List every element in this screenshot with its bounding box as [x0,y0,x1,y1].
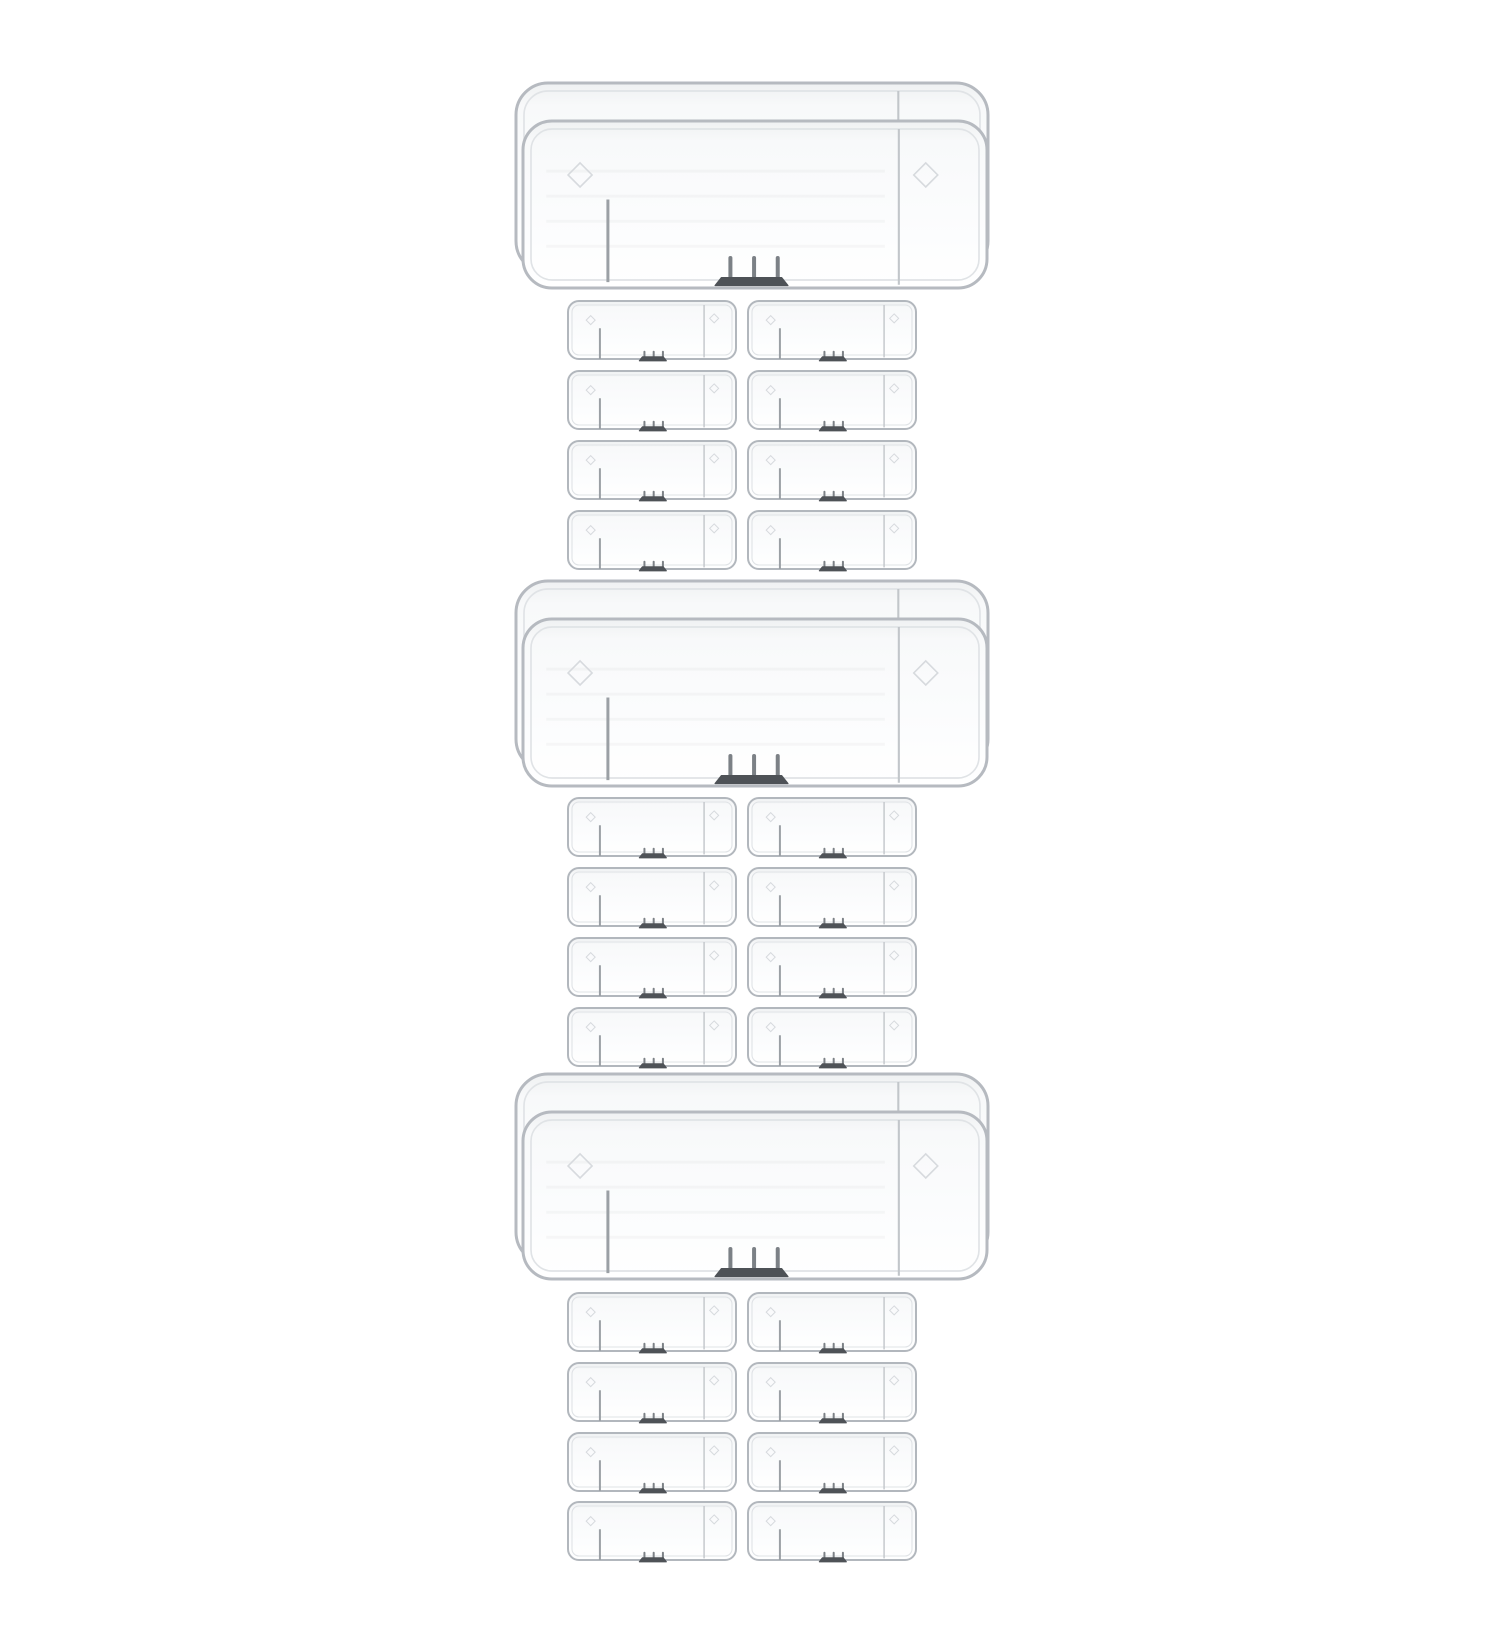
lock-base-bar [819,357,846,361]
tray-small-3-r4-c2-body [748,1502,916,1560]
organizer-set-1 [516,83,988,571]
lock-base-bar [715,776,788,784]
tray-small-1-r4-c1 [568,511,736,571]
tray-small-2-r4-c2 [748,1008,916,1068]
lock-base-bar [819,854,846,858]
tray-small-2-r1-c1-body [568,798,736,856]
tray-small-1-r2-c2 [748,371,916,431]
lock-base-bar [639,994,666,998]
lock-base-bar [639,854,666,858]
tray-small-2-r3-c2-body [748,938,916,996]
tray-small-2-r3-c1-body [568,938,736,996]
lock-base-bar [819,994,846,998]
tray-small-3-r2-c1-body [568,1363,736,1421]
product-photo [0,0,1500,1650]
lock-base-bar [819,1064,846,1068]
tray-small-3-r3-c2-body [748,1433,916,1491]
lock-base-bar [819,1489,846,1493]
lock-base-bar [819,1349,846,1353]
tray-small-1-r4-c2 [748,511,916,571]
tray-small-1-r3-c1-body [568,441,736,499]
lock-base-bar [639,567,666,571]
lock-base-bar [639,1064,666,1068]
lock-base-bar [819,924,846,928]
tray-small-3-r4-c2 [748,1502,916,1562]
tray-small-3-r3-c2 [748,1433,916,1493]
tray-small-2-r2-c2-body [748,868,916,926]
tray-small-1-r4-c1-body [568,511,736,569]
lock-base-bar [639,1419,666,1423]
tray-small-3-r1-c2 [748,1293,916,1353]
tray-large-front-3 [523,1112,987,1279]
tray-small-1-r3-c2 [748,441,916,501]
lock-base-bar [819,1558,846,1562]
tray-small-2-r4-c1 [568,1008,736,1068]
tray-small-1-r1-c2 [748,301,916,361]
tray-small-2-r1-c1 [568,798,736,858]
lock-base-bar [639,1558,666,1562]
tray-large-front-2 [523,619,987,786]
tray-large-front-1 [523,121,987,288]
tray-small-3-r3-c1 [568,1433,736,1493]
lock-base-bar [639,427,666,431]
tray-small-1-r1-c1-body [568,301,736,359]
tray-small-3-r1-c1 [568,1293,736,1353]
tray-small-2-r4-c2-body [748,1008,916,1066]
tray-small-2-r3-c2 [748,938,916,998]
lock-base-bar [639,357,666,361]
lock-base-bar [639,1489,666,1493]
tray-small-3-r2-c2 [748,1363,916,1423]
organizer-set-2 [516,581,988,1068]
tray-small-2-r1-c2-body [748,798,916,856]
lock-base-bar [639,924,666,928]
tray-small-1-r4-c2-body [748,511,916,569]
tray-small-3-r4-c1 [568,1502,736,1562]
tray-small-2-r2-c1 [568,868,736,928]
tray-small-1-r2-c2-body [748,371,916,429]
tray-small-2-r1-c2 [748,798,916,858]
lock-base-bar [639,497,666,501]
lock-base-bar [819,497,846,501]
tray-small-2-r2-c1-body [568,868,736,926]
tray-small-3-r1-c2-body [748,1293,916,1351]
lock-base-bar [715,278,788,286]
tray-small-2-r2-c2 [748,868,916,928]
lock-base-bar [819,427,846,431]
tray-small-3-r2-c1 [568,1363,736,1423]
lock-base-bar [819,567,846,571]
tray-small-1-r2-c1 [568,371,736,431]
organizer-set-3 [516,1074,988,1562]
tray-small-1-r1-c2-body [748,301,916,359]
product-photo-canvas [0,0,1500,1650]
lock-base-bar [715,1269,788,1277]
tray-small-1-r1-c1 [568,301,736,361]
lock-base-bar [819,1419,846,1423]
tray-small-3-r3-c1-body [568,1433,736,1491]
tray-small-2-r3-c1 [568,938,736,998]
tray-small-2-r4-c1-body [568,1008,736,1066]
tray-small-1-r3-c1 [568,441,736,501]
lock-base-bar [639,1349,666,1353]
tray-small-3-r4-c1-body [568,1502,736,1560]
tray-small-3-r1-c1-body [568,1293,736,1351]
tray-small-3-r2-c2-body [748,1363,916,1421]
tray-small-1-r2-c1-body [568,371,736,429]
tray-small-1-r3-c2-body [748,441,916,499]
